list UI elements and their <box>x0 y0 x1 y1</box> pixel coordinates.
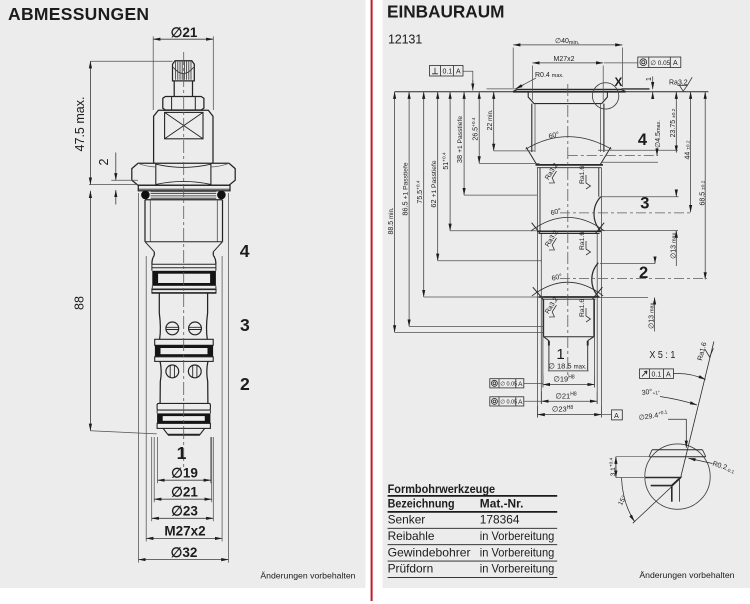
svg-text:86.5 +1 Passtiefe: 86.5 +1 Passtiefe <box>400 162 409 216</box>
svg-text:22 min.: 22 min. <box>487 109 494 130</box>
svg-text:R0.4 max.: R0.4 max. <box>535 72 564 79</box>
svg-text:M27x2: M27x2 <box>164 524 205 539</box>
svg-text:∅13 max.: ∅13 max. <box>649 301 656 329</box>
svg-text:23.75 ±0.2: 23.75 ±0.2 <box>670 108 677 137</box>
svg-text:A: A <box>614 413 619 420</box>
svg-text:1: 1 <box>646 77 653 81</box>
svg-text:A: A <box>666 371 671 378</box>
svg-text:A: A <box>456 69 461 76</box>
svg-text:2: 2 <box>639 264 648 282</box>
svg-text:∅32: ∅32 <box>171 545 198 560</box>
svg-text:44 ±0.2: 44 ±0.2 <box>685 140 692 159</box>
svg-text:∅13 max.: ∅13 max. <box>670 231 677 259</box>
svg-text:47.5 max.: 47.5 max. <box>73 97 87 152</box>
svg-text:4: 4 <box>638 131 648 149</box>
svg-text:A: A <box>518 399 523 406</box>
svg-text:∅ 0.05: ∅ 0.05 <box>650 60 670 67</box>
svg-text:2: 2 <box>240 374 250 394</box>
svg-text:62 +1 Passtiefe: 62 +1 Passtiefe <box>429 160 438 207</box>
svg-text:3: 3 <box>640 194 649 212</box>
svg-text:∅21: ∅21 <box>171 25 198 40</box>
svg-text:∅21: ∅21 <box>171 485 198 500</box>
svg-text:Bezeichnung: Bezeichnung <box>388 497 455 511</box>
svg-text:12131: 12131 <box>388 32 422 46</box>
svg-text:∅19: ∅19 <box>171 465 198 480</box>
svg-text:in Vorbereitung: in Vorbereitung <box>480 545 555 559</box>
svg-text:88.5 min.: 88.5 min. <box>388 207 395 234</box>
svg-text:Ra1.6: Ra1.6 <box>579 232 586 250</box>
svg-text:Senker: Senker <box>388 513 426 527</box>
svg-text:68.5 ±0.2: 68.5 ±0.2 <box>699 180 706 205</box>
svg-text:Änderungen vorbehalten: Änderungen vorbehalten <box>639 570 734 580</box>
svg-text:1: 1 <box>556 346 564 363</box>
svg-text:Prüfdorn: Prüfdorn <box>388 562 434 576</box>
svg-text:M27x2: M27x2 <box>554 56 575 63</box>
svg-text:EINBAURAUM: EINBAURAUM <box>387 2 504 22</box>
svg-text:178364: 178364 <box>480 513 520 527</box>
svg-text:Änderungen vorbehalten: Änderungen vorbehalten <box>260 570 355 580</box>
svg-text:A: A <box>518 381 523 388</box>
svg-text:in Vorbereitung: in Vorbereitung <box>480 529 555 543</box>
svg-text:1: 1 <box>177 443 187 463</box>
svg-text:Gewindebohrer: Gewindebohrer <box>388 545 471 559</box>
svg-text:X: X <box>615 75 623 89</box>
svg-text:X 5 : 1: X 5 : 1 <box>649 350 675 361</box>
svg-text:0.1: 0.1 <box>652 371 662 378</box>
svg-text:38 +1 Passtiefe: 38 +1 Passtiefe <box>455 116 464 163</box>
svg-text:ABMESSUNGEN: ABMESSUNGEN <box>8 4 149 24</box>
svg-text:Reibahle: Reibahle <box>388 529 435 543</box>
svg-text:A: A <box>673 60 678 67</box>
svg-text:∅4.5max.: ∅4.5max. <box>655 120 662 148</box>
svg-text:4: 4 <box>240 241 250 261</box>
svg-text:in Vorbereitung: in Vorbereitung <box>480 562 555 576</box>
svg-text:0.1: 0.1 <box>443 69 453 76</box>
svg-text:2: 2 <box>97 158 111 165</box>
svg-text:Ra1.6: Ra1.6 <box>579 166 586 184</box>
svg-text:3: 3 <box>240 315 250 335</box>
svg-text:∅ 0.05: ∅ 0.05 <box>500 399 517 406</box>
svg-text:Formbohrwerkzeuge: Formbohrwerkzeuge <box>388 482 496 496</box>
svg-text:∅40min.: ∅40min. <box>555 38 580 46</box>
svg-text:Ra1.6: Ra1.6 <box>579 299 586 317</box>
svg-text:∅ 0.05: ∅ 0.05 <box>500 381 517 388</box>
svg-text:88: 88 <box>73 296 87 310</box>
svg-text:∅23: ∅23 <box>171 504 198 519</box>
svg-text:Mat.-Nr.: Mat.-Nr. <box>480 497 524 511</box>
